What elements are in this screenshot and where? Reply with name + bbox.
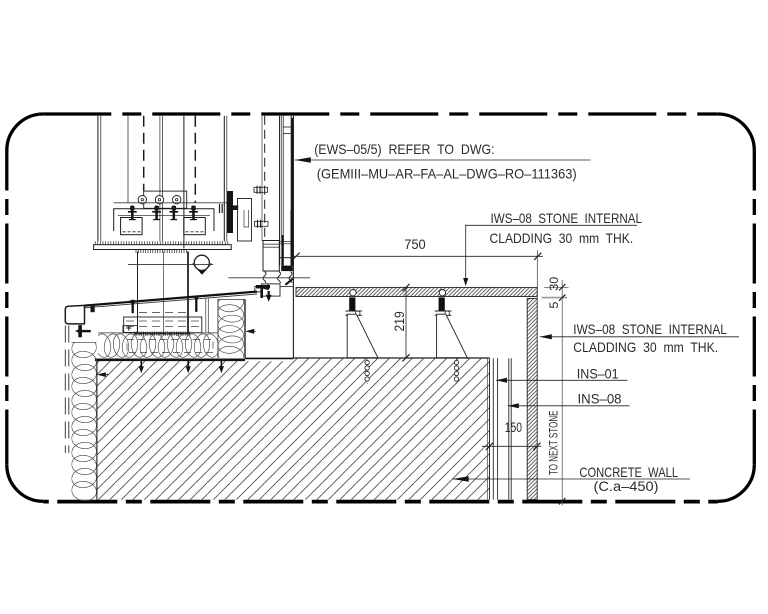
svg-text:IWS–08 STONE INTERNAL: IWS–08 STONE INTERNAL [491, 210, 643, 226]
svg-text:INS–01: INS–01 [577, 365, 619, 381]
svg-text:750: 750 [404, 237, 426, 252]
svg-text:TO NEXT STONE: TO NEXT STONE [546, 411, 560, 476]
svg-text:CONCRETE WALL: CONCRETE WALL [579, 464, 678, 480]
svg-text:5: 5 [547, 302, 561, 309]
svg-text:(EWS–05/5) REFER TO DWG:: (EWS–05/5) REFER TO DWG: [314, 141, 494, 157]
svg-text:219: 219 [392, 311, 407, 331]
svg-text:30: 30 [547, 277, 561, 291]
svg-text:CLADDING 30 mm THK.: CLADDING 30 mm THK. [573, 339, 718, 355]
svg-text:150: 150 [505, 420, 523, 435]
svg-text:CLADDING 30 mm THK.: CLADDING 30 mm THK. [490, 230, 634, 246]
svg-text:IWS–08 STONE INTERNAL: IWS–08 STONE INTERNAL [573, 321, 727, 337]
svg-text:(C.a–450): (C.a–450) [594, 479, 659, 494]
svg-text:INS–08: INS–08 [578, 390, 622, 406]
svg-text:(GEMIII–MU–AR–FA–AL–DWG–RO–111: (GEMIII–MU–AR–FA–AL–DWG–RO–111363) [317, 166, 577, 181]
